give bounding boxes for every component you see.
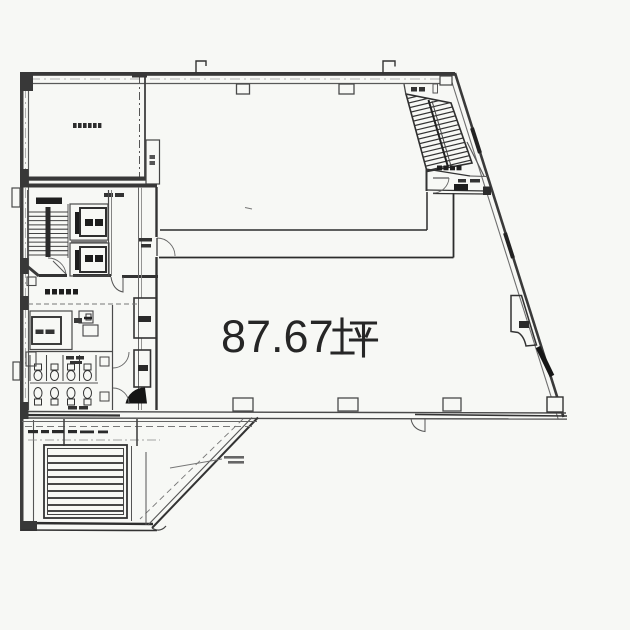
svg-text:87.67: 87.67 (221, 311, 334, 362)
